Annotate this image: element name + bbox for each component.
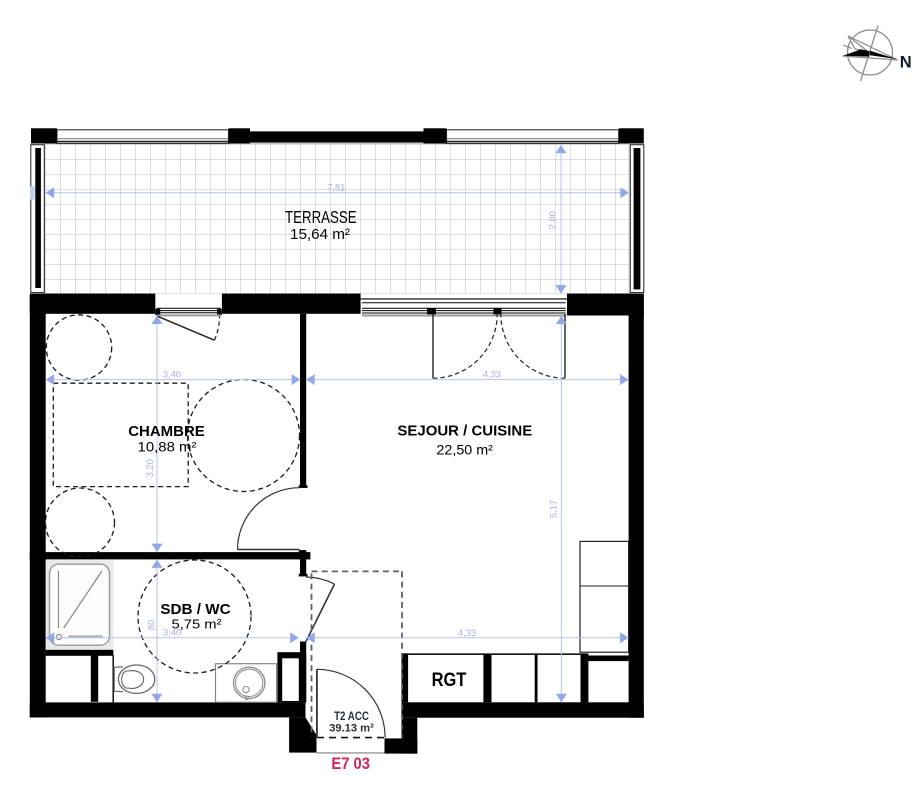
svg-text:5,75 m²: 5,75 m² (172, 617, 223, 632)
svg-text:4,33: 4,33 (483, 368, 501, 379)
svg-text:80: 80 (146, 620, 157, 630)
svg-text:22,50 m²: 22,50 m² (436, 442, 493, 457)
svg-text:T2 ACC: T2 ACC (334, 709, 369, 723)
svg-text:2,00: 2,00 (546, 211, 557, 229)
svg-text:4,33: 4,33 (458, 627, 476, 638)
svg-text:SDB / WC: SDB / WC (160, 601, 230, 618)
svg-text:5,17: 5,17 (548, 500, 559, 518)
svg-text:TERRASSE: TERRASSE (285, 207, 357, 227)
svg-text:3,20: 3,20 (144, 459, 155, 477)
svg-text:RGT: RGT (432, 670, 467, 691)
svg-text:39.13 m²: 39.13 m² (329, 722, 374, 734)
svg-text:15,64 m²: 15,64 m² (290, 226, 350, 243)
svg-text:CHAMBRE: CHAMBRE (128, 423, 205, 440)
svg-text:10,88 m²: 10,88 m² (138, 440, 197, 455)
svg-text:7,81: 7,81 (327, 182, 345, 193)
svg-text:N: N (900, 54, 912, 72)
svg-text:3,40: 3,40 (163, 368, 181, 379)
svg-text:E7 03: E7 03 (331, 755, 370, 773)
svg-text:SEJOUR / CUISINE: SEJOUR / CUISINE (397, 423, 532, 440)
